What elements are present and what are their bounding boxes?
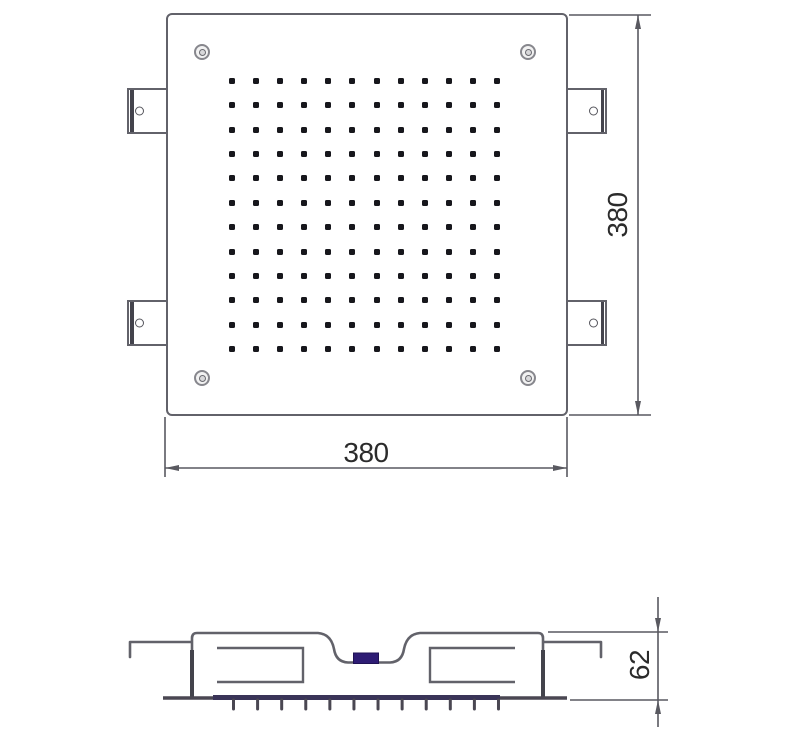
nozzle-dot [398, 273, 404, 279]
tab-fold-edge [130, 90, 134, 132]
corner-screw [520, 370, 536, 386]
nozzle-dot [253, 78, 259, 84]
nozzle-dot [494, 102, 500, 108]
corner-screw [520, 44, 536, 60]
nozzle-ticks [234, 700, 499, 709]
screw-head-icon [199, 375, 206, 382]
nozzle-dot [494, 151, 500, 157]
nozzle-dot [277, 346, 283, 352]
nozzle-dot [253, 249, 259, 255]
nozzle-dot [422, 346, 428, 352]
nozzle-dot [277, 322, 283, 328]
nozzle-dot [301, 346, 307, 352]
technical-drawing: 380 380 [0, 0, 800, 737]
nozzle-dot [349, 127, 355, 133]
nozzle-dot [422, 151, 428, 157]
nozzle-dot [494, 78, 500, 84]
nozzle-dot [325, 297, 331, 303]
mounting-tab-left-bottom [127, 300, 168, 346]
nozzle-dot [301, 273, 307, 279]
nozzle-dot [277, 273, 283, 279]
nozzle-dot [277, 78, 283, 84]
nozzle-dot [349, 224, 355, 230]
nozzle-dot [301, 297, 307, 303]
nozzle-dot [494, 346, 500, 352]
dimension-depth: 62 [548, 597, 668, 727]
nozzle-dot [349, 151, 355, 157]
nozzle-dot [253, 224, 259, 230]
nozzle-dot [470, 224, 476, 230]
nozzle-dot [422, 175, 428, 181]
mounting-tab-right-bottom [566, 300, 607, 346]
nozzle-dot [422, 297, 428, 303]
nozzle-dot [446, 297, 452, 303]
depth-dimension-label: 62 [624, 650, 655, 680]
screw-head-icon [199, 49, 206, 56]
nozzle-dot [301, 175, 307, 181]
nozzle-dot [301, 78, 307, 84]
nozzle-dot [446, 200, 452, 206]
nozzle-dot [325, 175, 331, 181]
nozzle-dot [277, 249, 283, 255]
nozzle-dot [494, 249, 500, 255]
nozzle-dot [398, 224, 404, 230]
dimension-height: 380 [569, 15, 651, 415]
nozzle-dot [374, 346, 380, 352]
nozzle-dot [349, 102, 355, 108]
nozzle-dot [229, 175, 235, 181]
nozzle-dot [301, 322, 307, 328]
arrowhead-right-icon [553, 465, 567, 471]
nozzle-dot [325, 127, 331, 133]
screw-head-icon [525, 375, 532, 382]
nozzle-dot [446, 322, 452, 328]
nozzle-dot [446, 102, 452, 108]
nozzle-dot [422, 273, 428, 279]
nozzle-dot [325, 200, 331, 206]
nozzle-dot [325, 151, 331, 157]
nozzle-dot [277, 127, 283, 133]
nozzle-dot [277, 224, 283, 230]
nozzle-dot [325, 322, 331, 328]
nozzle-dot [422, 200, 428, 206]
nozzle-dot [494, 273, 500, 279]
nozzle-dot [446, 127, 452, 133]
nozzle-dot [229, 102, 235, 108]
nozzle-dot [470, 127, 476, 133]
nozzle-dot [301, 249, 307, 255]
nozzle-dot [253, 273, 259, 279]
left-mount-hook [130, 642, 192, 657]
nozzle-dot [398, 102, 404, 108]
nozzle-dot [325, 273, 331, 279]
nozzle-dot [422, 78, 428, 84]
nozzle-dot [398, 346, 404, 352]
nozzle-dot [374, 127, 380, 133]
nozzle-dot [398, 322, 404, 328]
nozzle-dot [253, 102, 259, 108]
nozzle-dot [422, 322, 428, 328]
nozzle-dot [398, 151, 404, 157]
corner-screw [194, 44, 210, 60]
nozzle-dot [277, 200, 283, 206]
nozzle-dot [325, 102, 331, 108]
nozzle-dot [349, 297, 355, 303]
nozzle-dot [398, 175, 404, 181]
tab-fold-edge [601, 90, 605, 132]
nozzle-dot [277, 297, 283, 303]
nozzle-dot [470, 200, 476, 206]
nozzle-dot [374, 249, 380, 255]
nozzle-dot [494, 322, 500, 328]
nozzle-dot [422, 249, 428, 255]
nozzle-dot [398, 249, 404, 255]
nozzle-dot [253, 322, 259, 328]
nozzle-dot [253, 151, 259, 157]
nozzle-dot [422, 102, 428, 108]
nozzle-dot [374, 78, 380, 84]
nozzle-dot [277, 151, 283, 157]
arrowhead-up-icon [635, 15, 641, 29]
nozzle-dot [229, 346, 235, 352]
nozzle-dot [349, 249, 355, 255]
nozzle-dot [470, 102, 476, 108]
screw-head-icon [525, 49, 532, 56]
nozzle-dot [349, 322, 355, 328]
nozzle-dot [301, 200, 307, 206]
nozzle-dot [229, 249, 235, 255]
nozzle-dot [253, 297, 259, 303]
nozzle-dot [470, 78, 476, 84]
nozzle-dot [494, 127, 500, 133]
height-dimension-label: 380 [602, 192, 633, 237]
nozzle-dot [470, 346, 476, 352]
nozzle-dot [494, 224, 500, 230]
nozzle-dot [470, 249, 476, 255]
nozzle-dot [494, 297, 500, 303]
nozzle-dot [277, 102, 283, 108]
nozzle-dot [325, 78, 331, 84]
width-dimension-label: 380 [343, 437, 388, 468]
nozzle-dot [229, 297, 235, 303]
nozzle-dot [374, 322, 380, 328]
nozzle-dot [398, 297, 404, 303]
nozzle-dot [470, 273, 476, 279]
nozzle-dot [398, 127, 404, 133]
nozzle-dot [374, 200, 380, 206]
nozzle-dot [422, 127, 428, 133]
nozzle-dot [229, 224, 235, 230]
nozzle-dot [470, 151, 476, 157]
nozzle-dot [398, 200, 404, 206]
tab-hole [135, 107, 144, 116]
arrowhead-down-icon [655, 618, 661, 632]
nozzle-dot [470, 322, 476, 328]
nozzle-dot [325, 249, 331, 255]
tab-hole [135, 319, 144, 328]
nozzle-dot [301, 127, 307, 133]
tab-hole [589, 107, 598, 116]
nozzle-dot [229, 151, 235, 157]
nozzle-dot [349, 78, 355, 84]
nozzle-dot [253, 200, 259, 206]
nozzle-dot [446, 273, 452, 279]
dimension-width: 380 [165, 417, 567, 477]
nozzle-dot [374, 297, 380, 303]
water-inlet [354, 653, 379, 664]
nozzle-dot [446, 78, 452, 84]
nozzle-dot [301, 224, 307, 230]
nozzle-dot [229, 127, 235, 133]
nozzle-dot [446, 249, 452, 255]
tab-hole [589, 319, 598, 328]
nozzle-dot [229, 322, 235, 328]
nozzle-dot [446, 224, 452, 230]
nozzle-dot [253, 346, 259, 352]
nozzle-dot [349, 175, 355, 181]
nozzle-dot [470, 175, 476, 181]
side-view: 62 [130, 597, 668, 727]
right-mount-hook [543, 642, 601, 657]
nozzle-dot [494, 175, 500, 181]
nozzle-dot [446, 175, 452, 181]
nozzle-dot [470, 297, 476, 303]
nozzle-dot [349, 346, 355, 352]
nozzle-dot [494, 200, 500, 206]
mounting-tab-left-top [127, 88, 168, 134]
arrowhead-up-icon [655, 700, 661, 714]
mounting-tab-right-top [566, 88, 607, 134]
nozzle-grid [229, 78, 501, 354]
nozzle-dot [349, 200, 355, 206]
nozzle-dot [374, 175, 380, 181]
nozzle-dot [277, 175, 283, 181]
nozzle-dot [349, 273, 355, 279]
arrowhead-left-icon [165, 465, 179, 471]
nozzle-dot [301, 151, 307, 157]
nozzle-dot [446, 346, 452, 352]
nozzle-dot [229, 200, 235, 206]
nozzle-dot [374, 273, 380, 279]
nozzle-dot [301, 102, 307, 108]
nozzle-dot [398, 78, 404, 84]
nozzle-dot [325, 346, 331, 352]
nozzle-dot [374, 224, 380, 230]
nozzle-dot [422, 224, 428, 230]
nozzle-dot [229, 78, 235, 84]
nozzle-dot [325, 224, 331, 230]
nozzle-dot [229, 273, 235, 279]
nozzle-dot [446, 151, 452, 157]
nozzle-dot [374, 151, 380, 157]
body-profile [192, 633, 543, 698]
nozzle-dot [253, 175, 259, 181]
arrowhead-down-icon [635, 401, 641, 415]
nozzle-dot [253, 127, 259, 133]
tab-fold-edge [601, 302, 605, 344]
corner-screw [194, 370, 210, 386]
nozzle-dot [374, 102, 380, 108]
tab-fold-edge [130, 302, 134, 344]
